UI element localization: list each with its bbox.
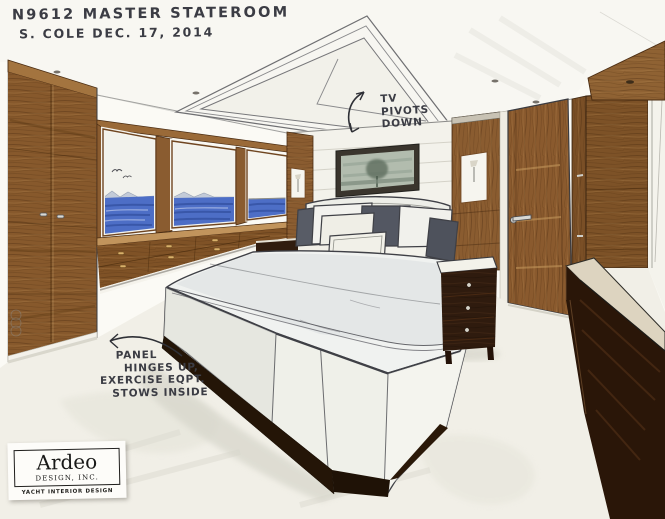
logo-name: Ardeo: [18, 451, 116, 474]
logo-tagline: YACHT INTERIOR DESIGN: [14, 488, 120, 496]
ardeo-logo: Ardeo DESIGN, INC. YACHT INTERIOR DESIGN: [7, 441, 126, 500]
window-1: [103, 129, 156, 236]
nightstand-leg: [445, 351, 452, 364]
wardrobe-handle: [57, 215, 64, 218]
panel-annotation-line: STOWS INSIDE: [112, 386, 208, 400]
drawer-knob: [467, 283, 471, 287]
ceiling-light: [626, 80, 634, 83]
accent-pillow: [426, 218, 458, 262]
window-shade: [247, 150, 287, 199]
panel-annotation: PANEL HINGES UP, EXERCISE EQPT. STOWS IN…: [100, 348, 209, 400]
logo-subtitle: DESIGN, INC.: [18, 473, 116, 483]
logo-border-box: Ardeo DESIGN, INC.: [14, 448, 121, 487]
drawing-title: N9612 MASTER STATEROOM S. COLE DEC. 17, …: [12, 5, 290, 42]
panel-annotation-line: EXERCISE EQPT.: [100, 373, 208, 387]
title-line1: N9612 MASTER STATEROOM: [12, 5, 290, 24]
window-2: [172, 141, 236, 228]
stateroom-sketch-page: N9612 MASTER STATEROOM S. COLE DEC. 17, …: [0, 0, 665, 519]
tv-annotation-line: DOWN: [381, 116, 430, 131]
headboard-artwork: [336, 144, 419, 197]
wardrobe-handle: [40, 213, 47, 216]
drawer-knob: [466, 306, 470, 310]
tv-annotation: TV PIVOTS DOWN: [380, 91, 430, 131]
port-wardrobe: [8, 60, 97, 365]
right-pilaster-panel: [452, 112, 500, 270]
window-3: [247, 150, 287, 220]
cabin-door: [508, 99, 572, 316]
door-casing: [500, 111, 508, 303]
window-mullion: [236, 147, 247, 225]
nightstand-leg: [487, 347, 494, 360]
drawer-knob: [465, 328, 469, 332]
right-nightstand: [437, 257, 497, 364]
window-mullion: [156, 136, 172, 233]
title-line2: S. COLE DEC. 17, 2014: [19, 24, 290, 42]
